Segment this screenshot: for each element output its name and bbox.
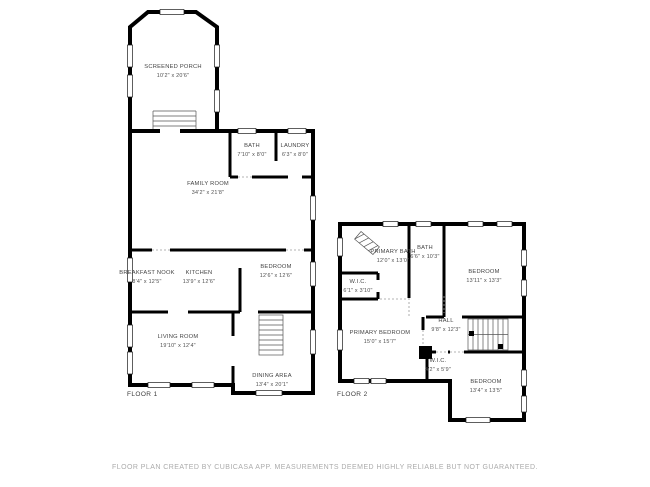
window [338, 330, 343, 350]
room-label-primary-bath: PRIMARY BATH 12'0" x 13'0" [370, 247, 415, 264]
room-dims: 13'9" x 12'6" [183, 277, 215, 285]
room-label-primary-bedroom: PRIMARY BEDROOM 15'0" x 15'7" [350, 328, 411, 345]
room-dims: 12'6" x 12'6" [260, 271, 292, 279]
room-name: PRIMARY BEDROOM [350, 328, 411, 337]
window [256, 391, 282, 396]
room-label-wic-lower: W.I.C. 4'2" x 5'9" [425, 356, 451, 373]
window [128, 352, 133, 374]
room-label-dining-area: DINING AREA 13'4" x 20'1" [252, 371, 292, 388]
room-name: DINING AREA [252, 371, 292, 380]
room-label-bedroom-upper: BEDROOM 13'11" x 13'3" [466, 267, 501, 284]
room-dims: 12'0" x 13'0" [377, 256, 409, 264]
window [215, 90, 220, 112]
window [522, 280, 527, 296]
room-dims: 13'4" x 20'1" [256, 380, 288, 388]
room-dims: 15'0" x 15'7" [364, 337, 396, 345]
window [354, 379, 369, 384]
window [468, 222, 483, 227]
window [192, 383, 214, 388]
porch-steps [153, 111, 196, 129]
floor1-label: FLOOR 1 [127, 391, 158, 398]
room-name: PRIMARY BATH [370, 247, 415, 256]
room-dims: 13'4" x 13'5" [470, 386, 502, 394]
window [497, 222, 512, 227]
floor1-stairs [259, 315, 283, 355]
window [371, 379, 386, 384]
room-name: BATH [417, 243, 433, 252]
floor1-porch-steps [153, 111, 196, 129]
room-dims: 13'11" x 13'3" [466, 276, 501, 284]
room-name: SCREENED PORCH [144, 62, 201, 71]
window [338, 238, 343, 256]
room-name: BEDROOM [468, 267, 499, 276]
room-dims: 7'10" x 8'0" [237, 150, 266, 158]
room-label-family-room: FAMILY ROOM 34'2" x 21'8" [187, 179, 229, 196]
room-name: BEDROOM [470, 377, 501, 386]
window [522, 250, 527, 266]
room-label-bedroom-lower: BEDROOM 13'4" x 13'5" [470, 377, 502, 394]
room-dims: 6'3" x 8'0" [282, 150, 308, 158]
window [311, 330, 316, 354]
room-dims: 10'2" x 20'6" [157, 71, 189, 79]
window [466, 418, 490, 423]
room-dims: 9'8" x 12'3" [431, 325, 460, 333]
room-name: W.I.C. [350, 277, 367, 286]
room-label-laundry: LAUNDRY 6'3" x 8'0" [281, 141, 310, 158]
room-label-breakfast-nook: BREAKFAST NOOK 8'4" x 12'5" [119, 268, 174, 285]
floor2-label: FLOOR 2 [337, 391, 368, 398]
room-name: HALL [438, 316, 453, 325]
room-name: W.I.C. [430, 356, 447, 365]
footer-disclaimer: FLOOR PLAN CREATED BY CUBICASA APP. MEAS… [0, 464, 650, 471]
room-dims: 6'6" x 10'3" [410, 252, 439, 260]
window [311, 262, 316, 286]
porch-door-gap [160, 128, 180, 134]
room-name: FAMILY ROOM [187, 179, 229, 188]
window [311, 196, 316, 220]
window [160, 10, 184, 15]
room-name: BEDROOM [260, 262, 291, 271]
window [128, 325, 133, 347]
room-label-screened-porch: SCREENED PORCH 10'2" x 20'6" [144, 62, 201, 79]
window [128, 75, 133, 97]
window [148, 383, 170, 388]
room-label-bath-floor1: BATH 7'10" x 8'0" [237, 141, 266, 158]
room-name: LAUNDRY [281, 141, 310, 150]
floor-plan-page: SCREENED PORCH 10'2" x 20'6" BATH 7'10" … [0, 0, 650, 487]
room-label-living-room: LIVING ROOM 19'10" x 12'4" [158, 332, 199, 349]
window [128, 45, 133, 67]
window [238, 129, 256, 134]
window [383, 222, 398, 227]
room-name: BREAKFAST NOOK [119, 268, 174, 277]
room-dims: 6'1" x 3'10" [343, 286, 372, 294]
room-label-bath-floor2: BATH 6'6" x 10'3" [410, 243, 439, 260]
room-name: KITCHEN [186, 268, 213, 277]
floor-plan-drawing [0, 0, 650, 487]
room-dims: 19'10" x 12'4" [160, 341, 196, 349]
room-name: LIVING ROOM [158, 332, 199, 341]
window [416, 222, 431, 227]
room-label-kitchen: KITCHEN 13'9" x 12'6" [183, 268, 215, 285]
stairs [468, 319, 508, 350]
window [288, 129, 306, 134]
room-dims: 34'2" x 21'8" [192, 188, 224, 196]
room-label-hall: HALL 9'8" x 12'3" [431, 316, 460, 333]
window [522, 396, 527, 412]
room-dims: 4'2" x 5'9" [425, 365, 451, 373]
window [215, 45, 220, 67]
room-dims: 8'4" x 12'5" [132, 277, 161, 285]
window [522, 370, 527, 386]
room-name: BATH [244, 141, 260, 150]
room-label-bedroom-floor1: BEDROOM 12'6" x 12'6" [260, 262, 292, 279]
room-label-wic-upper: W.I.C. 6'1" x 3'10" [343, 277, 372, 294]
